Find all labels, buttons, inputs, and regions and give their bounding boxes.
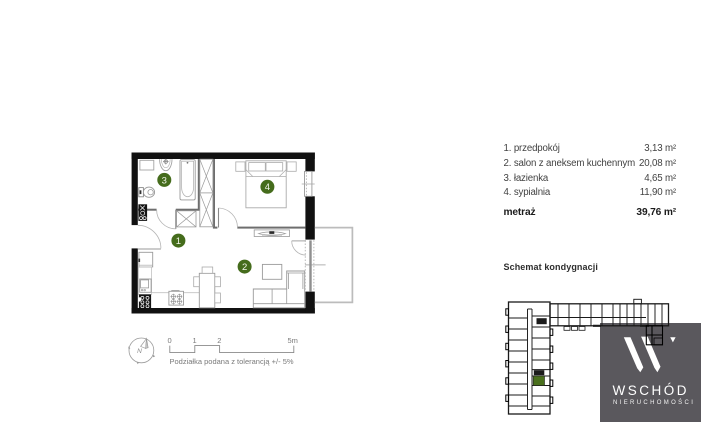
svg-text:3: 3 (162, 175, 167, 186)
svg-text:2: 2 (242, 262, 247, 273)
svg-text:N: N (137, 348, 142, 355)
svg-text:1: 1 (176, 236, 181, 247)
svg-text:4: 4 (265, 182, 270, 193)
